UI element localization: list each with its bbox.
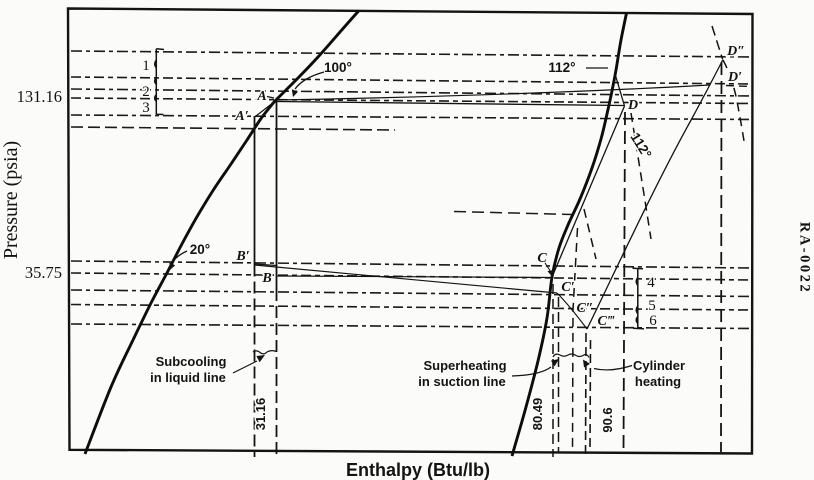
svg-text:20°: 20° [190,242,210,257]
svg-text:Superheating: Superheating [423,358,506,373]
svg-text:112°: 112° [548,60,575,75]
svg-text:112°: 112° [627,130,654,161]
svg-text:heating: heating [635,374,681,389]
svg-text:C″: C″ [576,301,593,316]
svg-text:B′: B′ [235,249,249,264]
svg-text:C‴: C‴ [597,314,614,329]
svg-text:Enthalpy (Btu/lb): Enthalpy (Btu/lb) [346,460,490,480]
svg-text:6: 6 [649,313,657,329]
svg-text:131.16: 131.16 [17,87,62,106]
svg-text:A′: A′ [234,109,248,124]
svg-text:90.6: 90.6 [600,407,615,432]
svg-text:D: D [627,98,638,113]
svg-text:D″: D″ [726,44,745,59]
svg-text:4: 4 [647,275,655,291]
svg-text:RA-0022: RA-0022 [797,222,813,294]
svg-text:Subcooling: Subcooling [156,354,227,369]
svg-text:1: 1 [142,58,150,74]
svg-text:B: B [261,271,271,286]
svg-text:A: A [256,89,266,104]
svg-text:Cylinder: Cylinder [633,358,685,373]
svg-text:100°: 100° [324,60,352,75]
svg-text:2: 2 [142,84,150,100]
svg-text:Pressure (psia): Pressure (psia) [0,141,22,259]
svg-text:35.75: 35.75 [25,263,62,282]
svg-text:in suction line: in suction line [418,374,505,389]
svg-text:5: 5 [648,298,656,314]
svg-text:80.49: 80.49 [530,398,545,431]
svg-text:3: 3 [142,100,150,116]
svg-text:C′: C′ [561,280,574,295]
svg-text:31.16: 31.16 [253,398,268,431]
svg-text:in liquid line: in liquid line [150,370,226,385]
svg-text:D′: D′ [727,70,742,85]
